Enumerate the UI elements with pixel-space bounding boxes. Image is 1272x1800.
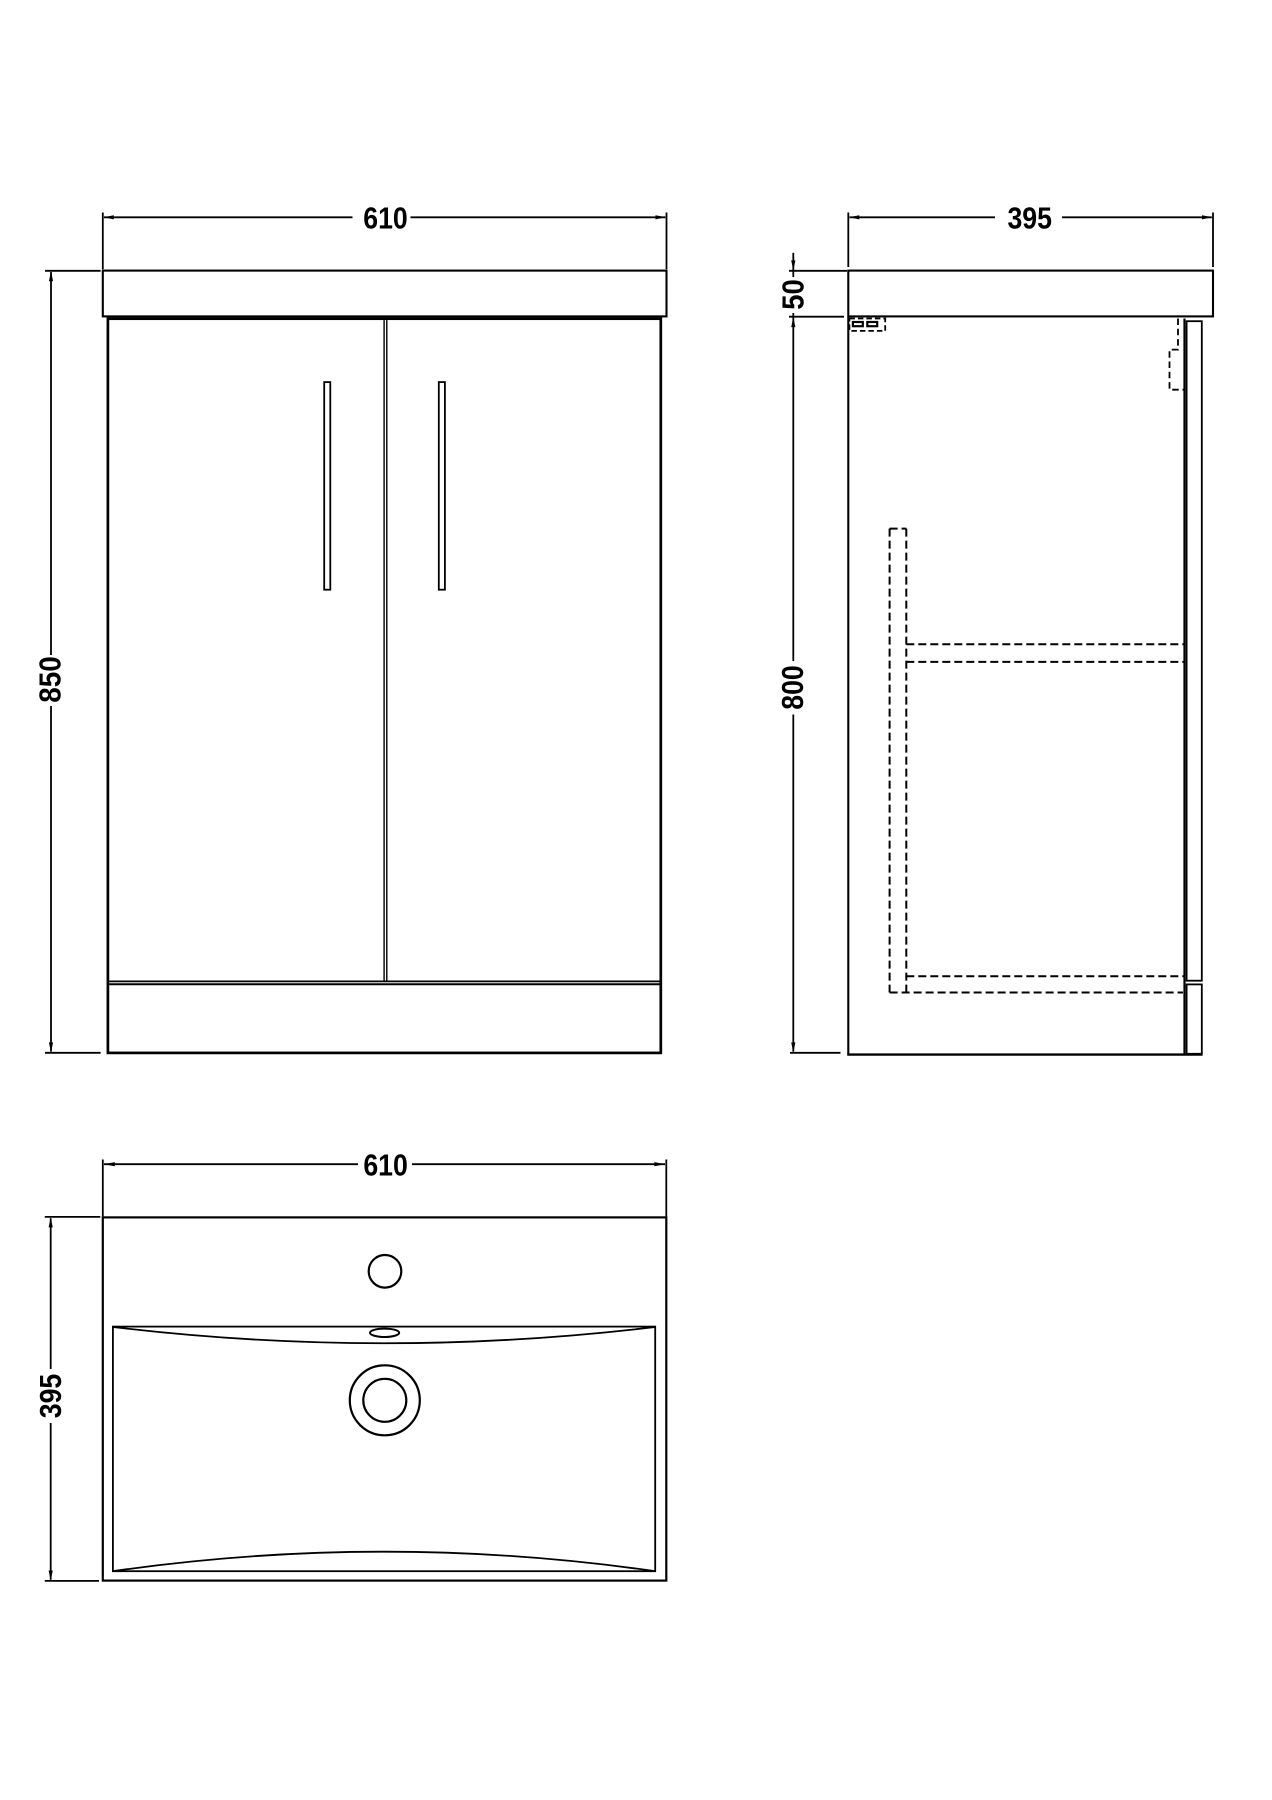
svg-text:850: 850 [33,656,68,703]
svg-text:610: 610 [363,200,408,235]
svg-text:610: 610 [363,1147,408,1182]
svg-text:50: 50 [776,279,811,310]
svg-text:395: 395 [1007,200,1052,235]
svg-text:395: 395 [33,1374,68,1419]
svg-text:800: 800 [775,665,810,710]
